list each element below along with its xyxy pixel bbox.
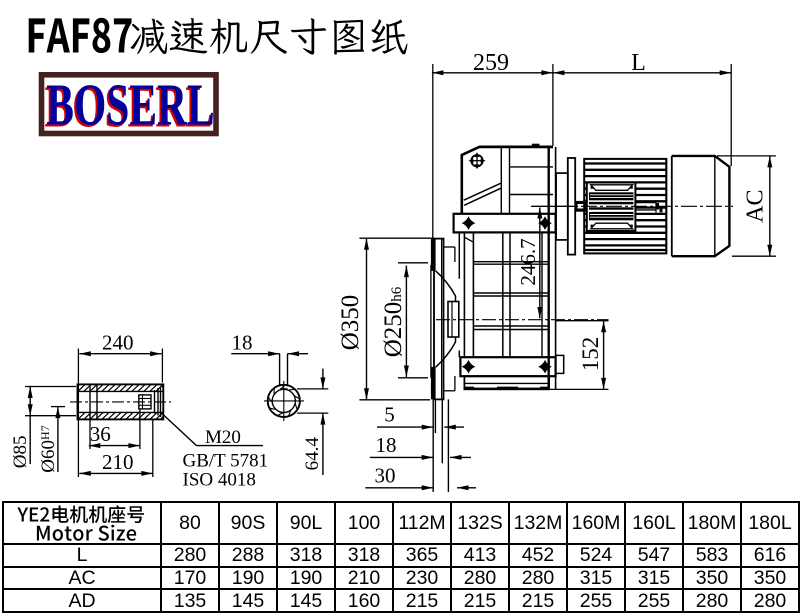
svg-text:L: L <box>631 50 646 76</box>
svg-text:AC: AC <box>743 189 769 222</box>
svg-text:152: 152 <box>578 337 603 372</box>
svg-text:18: 18 <box>232 331 253 355</box>
svg-text:64.4: 64.4 <box>302 437 323 471</box>
svg-text:210: 210 <box>102 450 134 474</box>
svg-text:M20: M20 <box>205 427 241 448</box>
svg-text:Ø250h6: Ø250h6 <box>380 286 407 357</box>
svg-text:246.7: 246.7 <box>516 238 540 285</box>
svg-text:259: 259 <box>473 50 509 76</box>
svg-text:18: 18 <box>376 433 397 457</box>
svg-text:240: 240 <box>102 331 134 355</box>
svg-text:36: 36 <box>90 422 111 446</box>
svg-text:30: 30 <box>375 464 396 488</box>
svg-text:Ø350: Ø350 <box>337 295 364 351</box>
svg-text:5: 5 <box>384 403 395 427</box>
svg-text:GB/T 5781: GB/T 5781 <box>183 451 269 472</box>
svg-text:Ø60H7: Ø60H7 <box>38 425 59 472</box>
svg-text:ISO 4018: ISO 4018 <box>183 470 256 491</box>
svg-text:Ø85: Ø85 <box>10 436 31 469</box>
